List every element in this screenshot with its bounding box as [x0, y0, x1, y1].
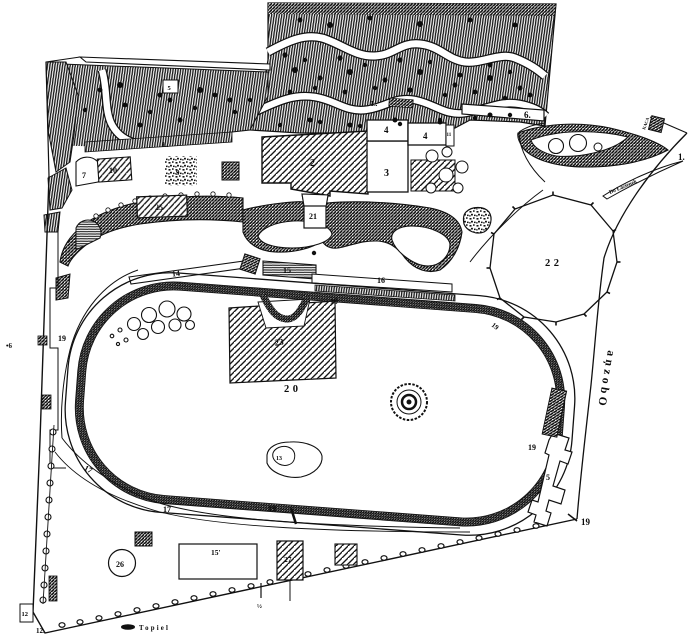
- svg-text:9: 9: [176, 169, 180, 177]
- svg-text:2: 2: [310, 158, 315, 169]
- svg-text:26: 26: [116, 560, 124, 569]
- svg-text:17: 17: [163, 505, 171, 514]
- svg-text:Topiel: Topiel: [139, 625, 170, 632]
- svg-text:13: 13: [276, 456, 282, 462]
- svg-text:19: 19: [528, 443, 536, 452]
- svg-text:19: 19: [58, 334, 66, 343]
- svg-text:15': 15': [211, 548, 221, 557]
- svg-text:19: 19: [581, 517, 591, 527]
- svg-text:20: 20: [284, 384, 302, 395]
- svg-text:Ł.: Ł.: [371, 100, 378, 108]
- svg-text:Ł.: Ł.: [162, 141, 169, 149]
- svg-text:14: 14: [171, 269, 180, 279]
- svg-text:12.: 12.: [36, 627, 45, 635]
- svg-text:19: 19: [268, 504, 276, 513]
- svg-text:½: ½: [257, 603, 262, 610]
- svg-text:•6: •6: [6, 342, 12, 350]
- svg-text:6.: 6.: [524, 110, 531, 120]
- svg-text:16: 16: [377, 276, 385, 285]
- svg-text:11: 11: [447, 133, 452, 138]
- svg-text:21: 21: [309, 212, 317, 221]
- svg-text:15: 15: [283, 266, 291, 275]
- svg-text:12: 12: [22, 611, 29, 618]
- svg-text:1.: 1.: [678, 152, 685, 162]
- svg-text:10: 10: [109, 166, 117, 175]
- svg-text:4: 4: [423, 131, 428, 141]
- svg-text:7: 7: [82, 171, 86, 180]
- svg-text:4: 4: [384, 125, 389, 135]
- svg-text:19: 19: [330, 297, 338, 306]
- svg-text:27: 27: [284, 555, 292, 564]
- svg-text:25: 25: [155, 203, 163, 212]
- svg-text:5: 5: [546, 473, 550, 482]
- svg-text:22: 22: [545, 258, 563, 269]
- svg-text:3: 3: [384, 168, 389, 179]
